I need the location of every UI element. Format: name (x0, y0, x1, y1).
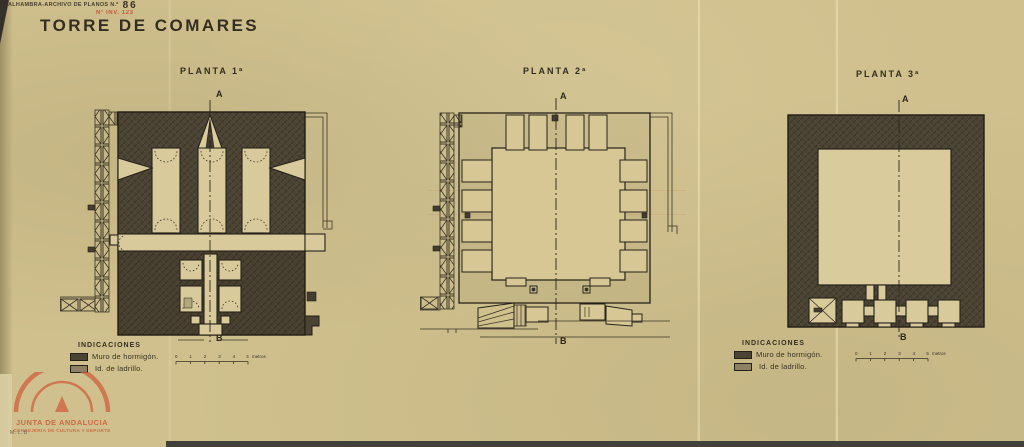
plan-1-wall-detail-strip (60, 110, 118, 312)
scale-bar-right: 0 1 2 3 4 5 metros (852, 349, 952, 363)
pencil-note: M.L.B (10, 430, 28, 436)
plan-2-wall-detail-strip (420, 113, 462, 310)
plan-3-title: PLANTA 3ª (856, 69, 920, 79)
legend-row-brick: Id. de ladrillo. (734, 362, 822, 371)
plan-2-entrance-and-stairs (420, 303, 670, 337)
scale-tick: 5 (926, 351, 929, 356)
brick-swatch-icon (734, 363, 752, 371)
legend-right: INDICACIONES Muro de hormigón. Id. de la… (734, 340, 822, 371)
legend-row-concrete: Muro de hormigón. (70, 352, 158, 361)
legend-label: Muro de hormigón. (92, 352, 158, 361)
scale-tick: 3 (898, 351, 901, 356)
scale-tick: 2 (884, 351, 887, 356)
scale-tick: 5 (246, 354, 249, 359)
scale-tick: 3 (218, 354, 221, 359)
plan-2-drawing (420, 86, 695, 354)
scale-bar-left: 0 1 2 3 4 5 metros (172, 352, 272, 366)
scale-tick: 0 (855, 351, 858, 356)
junta-arches-icon (6, 372, 118, 412)
legend-row-concrete: Muro de hormigón. (734, 350, 822, 359)
plan-3-tower-body (788, 115, 984, 327)
scale-tick: 0 (175, 354, 178, 359)
scale-tick: 1 (869, 351, 872, 356)
legend-header: INDICACIONES (70, 342, 158, 349)
scale-tick: 2 (204, 354, 207, 359)
legend-label: Muro de hormigón. (756, 350, 822, 359)
archive-label: ALHAMBRA-ARCHIVO DE PLANOS N.º (8, 2, 119, 8)
plan-1-corridor (110, 234, 325, 251)
legend-label: Id. de ladrillo. (756, 362, 807, 371)
scale-tick: 4 (233, 354, 236, 359)
scale-unit: metros (252, 354, 267, 359)
scale-tick: 4 (913, 351, 916, 356)
archive-header: ALHAMBRA-ARCHIVO DE PLANOS N.º 86 (8, 2, 138, 10)
plan-2-adjacent-wall-outline (650, 113, 677, 234)
plan-1-title: PLANTA 1ª (180, 66, 244, 76)
stamp-org-name: JUNTA DE ANDALUCIA (4, 418, 120, 427)
plan-1-adjacent-wall-outline (305, 113, 332, 229)
legend-header: INDICACIONES (734, 340, 822, 347)
concrete-swatch-icon (734, 351, 752, 359)
archive-number: 86 (123, 2, 138, 10)
plan-1-drawing (60, 88, 340, 348)
paper-fold-crease (697, 0, 700, 447)
scale-tick: 1 (189, 354, 192, 359)
junta-de-andalucia-stamp: JUNTA DE ANDALUCIA CONSEJERIA DE CULTURA… (4, 372, 120, 433)
page-title: TORRE DE COMARES (40, 16, 259, 36)
plan-2-title: PLANTA 2ª (523, 66, 587, 76)
scan-background-edge (166, 441, 1024, 447)
plan-sheet: ALHAMBRA-ARCHIVO DE PLANOS N.º 86 Nº INV… (0, 0, 1024, 447)
scale-unit: metros (932, 351, 947, 356)
concrete-swatch-icon (70, 353, 88, 361)
plan-3-stair-room (809, 298, 836, 323)
plan-3-drawing (772, 92, 1007, 344)
legend-left: INDICACIONES Muro de hormigón. Id. de la… (70, 342, 158, 373)
